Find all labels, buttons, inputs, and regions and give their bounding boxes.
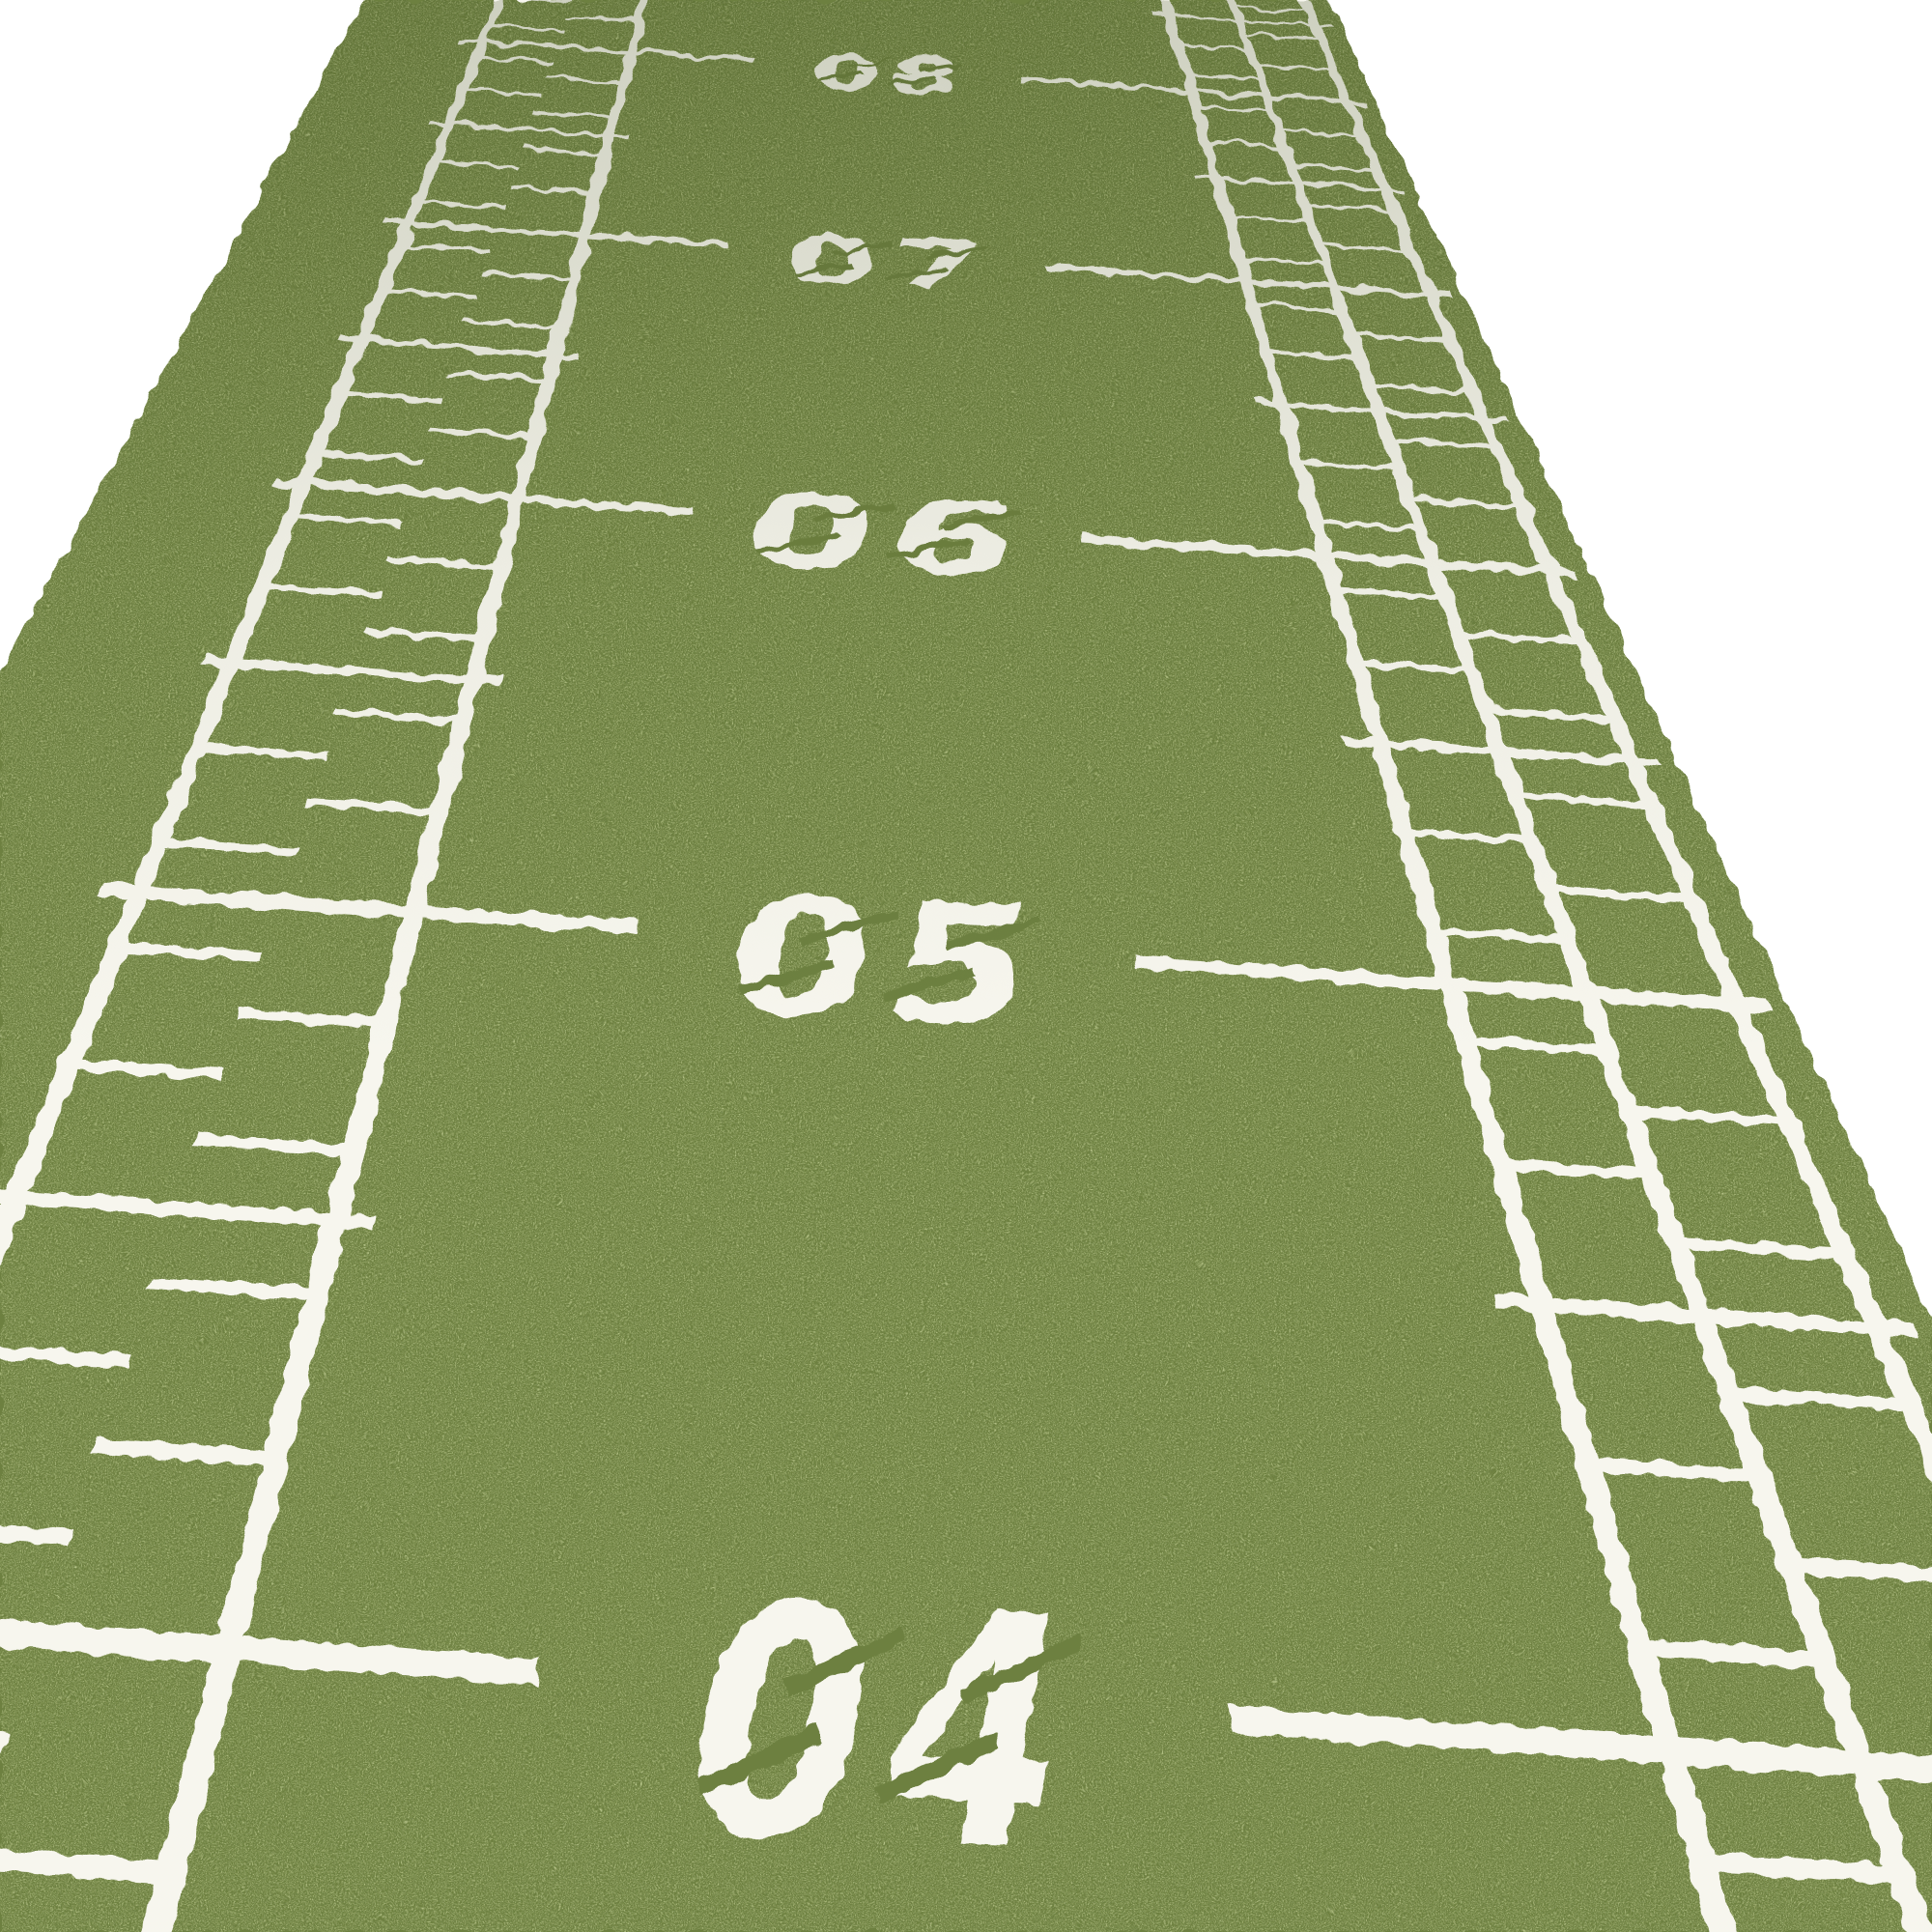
sprint-track-product-photo: 0405060708 — [0, 0, 1932, 1932]
turf-scene: 0405060708 — [0, 0, 1932, 1932]
